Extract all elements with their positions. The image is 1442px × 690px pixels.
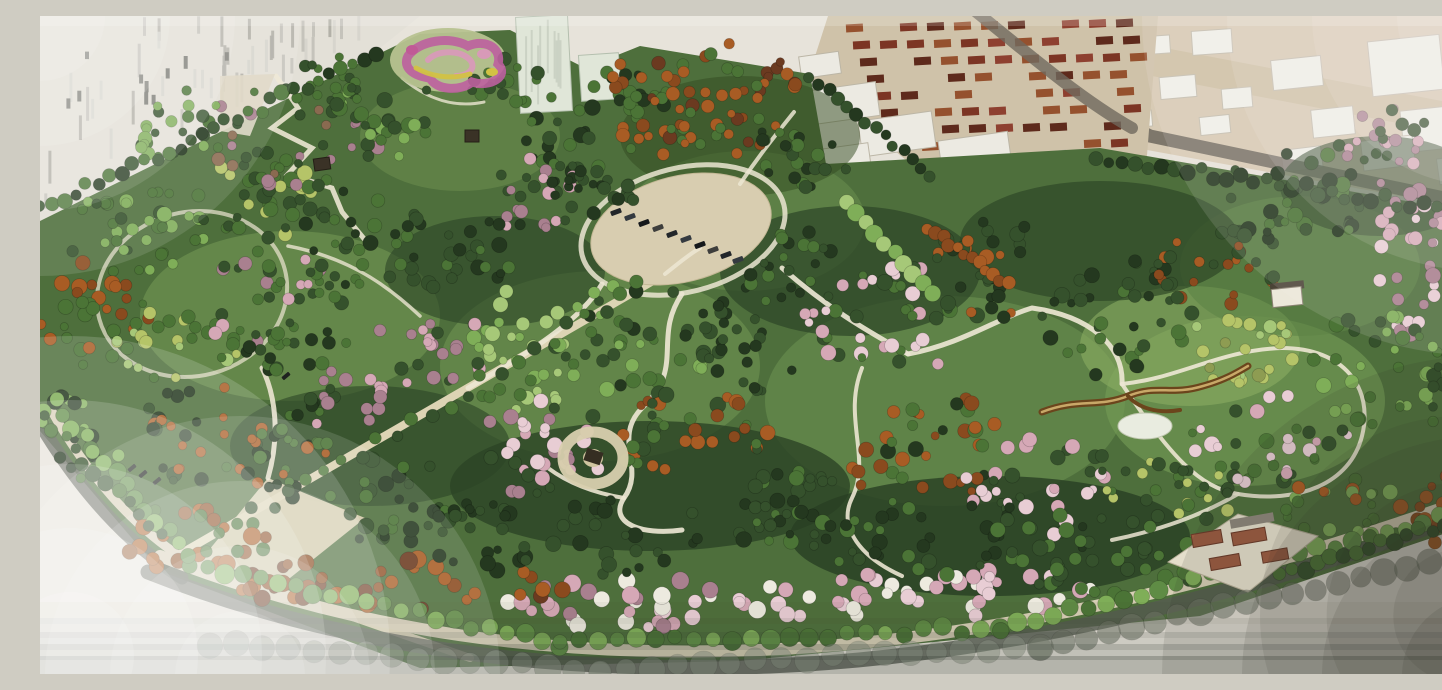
park-scene-canvas [40,16,1442,674]
building [465,130,479,142]
park-aerial-rendering [40,16,1442,674]
building [313,157,331,171]
white-dome-mound [1118,413,1172,439]
top-haze [40,16,1442,26]
